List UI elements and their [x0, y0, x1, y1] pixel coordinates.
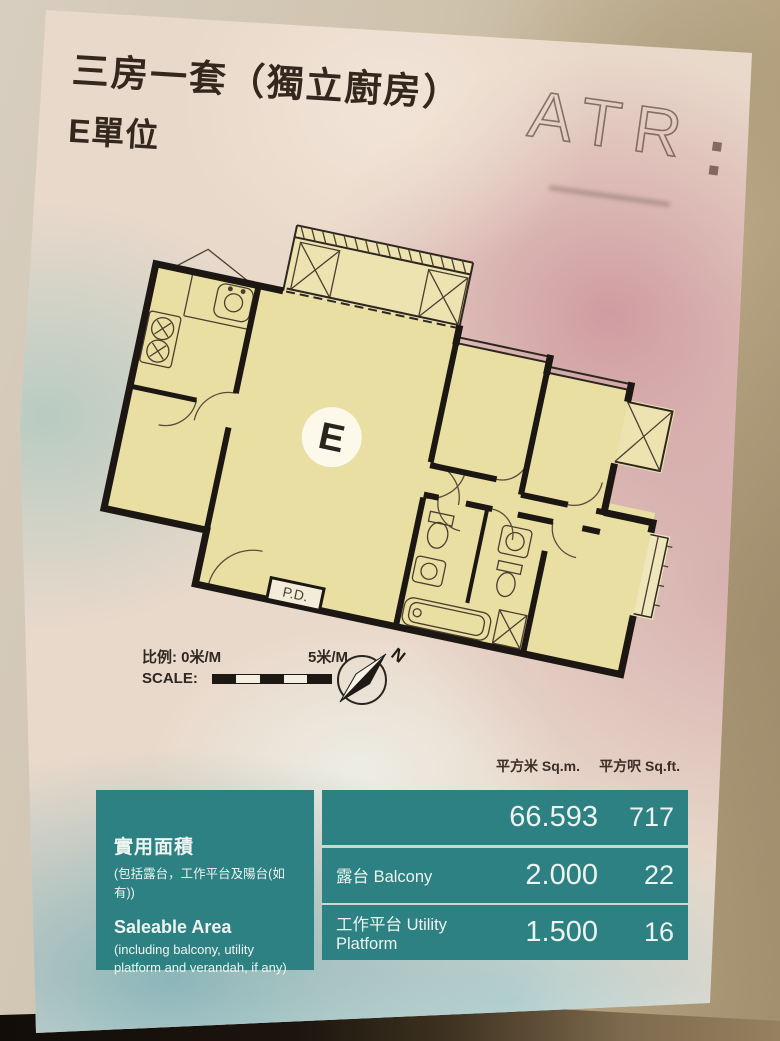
row-sqm-value: 1.500 [488, 916, 598, 949]
scale-zero-label: 0米/M [181, 649, 221, 666]
unit-type-title: 三房一套（獨立廚房） [71, 40, 464, 118]
photo-of-floorplan-poster: 三房一套（獨立廚房） E單位 ATR [0, 0, 780, 1041]
logo-tagline-blur [549, 185, 671, 207]
sqm-column-header: 平方米 Sq.m. [430, 756, 580, 776]
table-row: 露台 Balcony 2.000 22 [322, 848, 688, 903]
table-row: 66.593 717 [322, 790, 688, 845]
room-fills [93, 212, 688, 679]
sqft-column-header: 平方呎 Sq.ft. [580, 756, 680, 776]
compass-north-label: N [388, 644, 406, 667]
row-sqm-value: 66.593 [488, 801, 598, 834]
area-values-block: 66.593 717 露台 Balcony 2.000 22 工作平台 Util… [322, 790, 688, 960]
scale-en-label: SCALE: [142, 670, 198, 687]
atr-logo-text: ATR [525, 80, 752, 176]
table-row: 工作平台 Utility Platform 1.500 16 [322, 905, 688, 960]
saleable-area-zh-title: 實用面積 [114, 832, 298, 859]
scale-bar: 比例: 0米/M 5米/M SCALE: [142, 646, 348, 687]
saleable-area-en-title: Saleable Area [114, 917, 298, 938]
row-label: 工作平台 Utility Platform [322, 911, 488, 954]
saleable-area-label-cell: 實用面積 (包括露台，工作平台及陽台(如有)) Saleable Area (i… [96, 790, 314, 970]
floor-plan: P.D. E [88, 212, 688, 692]
row-sqft-value: 717 [598, 802, 684, 833]
row-sqft-value: 16 [598, 917, 684, 948]
floor-plan-svg: P.D. E [88, 212, 688, 692]
compass-icon: N [328, 636, 406, 716]
compass: N [328, 636, 406, 721]
row-sqft-value: 22 [598, 860, 684, 891]
area-table-headers: 平方米 Sq.m. 平方呎 Sq.ft. [430, 756, 680, 776]
row-label: 露台 Balcony [322, 863, 488, 887]
saleable-area-table: 實用面積 (包括露台，工作平台及陽台(如有)) Saleable Area (i… [96, 790, 688, 970]
scale-bar-graphic [212, 674, 332, 684]
logo-colon-square [709, 165, 719, 175]
unit-title: 三房一套（獨立廚房） E單位 [67, 40, 463, 176]
row-sqm-value: 2.000 [488, 859, 598, 892]
logo-colon-square [712, 142, 722, 152]
saleable-area-en-note: (including balcony, utility platform and… [114, 941, 298, 976]
scale-zh-label: 比例: [142, 649, 177, 666]
unit-name: E單位 [67, 104, 459, 176]
atr-logo: ATR [517, 80, 752, 229]
floorplan-poster: 三房一套（獨立廚房） E單位 ATR [0, 0, 780, 1041]
saleable-area-zh-note: (包括露台，工作平台及陽台(如有)) [114, 863, 298, 901]
